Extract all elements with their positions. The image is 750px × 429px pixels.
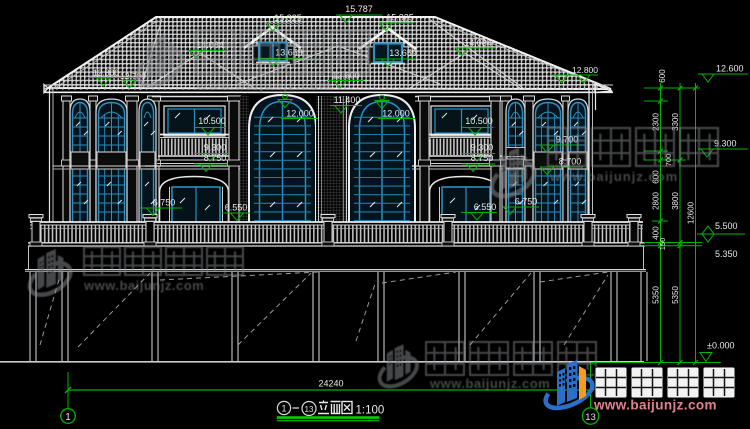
svg-text:5350: 5350 [652, 286, 661, 304]
svg-text:www.baijunjz.com: www.baijunjz.com [429, 376, 550, 391]
svg-text:6.550: 6.550 [474, 202, 497, 212]
svg-text:13.659: 13.659 [389, 48, 417, 58]
svg-text:1: 1 [281, 404, 286, 414]
svg-text:3800: 3800 [671, 192, 680, 210]
svg-text:2800: 2800 [652, 192, 661, 210]
svg-text:10.500: 10.500 [198, 116, 226, 126]
svg-text:400: 400 [652, 226, 661, 240]
svg-text:www.baijunjz.com: www.baijunjz.com [83, 278, 204, 293]
svg-text:9.300: 9.300 [471, 143, 494, 153]
svg-text:±0.000: ±0.000 [707, 341, 734, 351]
svg-text:11.400: 11.400 [334, 95, 361, 105]
svg-text:12.000: 12.000 [286, 109, 314, 119]
svg-text:5.500: 5.500 [715, 221, 738, 231]
svg-text:8.750: 8.750 [204, 153, 227, 163]
svg-text:24240: 24240 [318, 379, 343, 389]
svg-text:www.baijunjz.com: www.baijunjz.com [549, 169, 678, 184]
svg-text:15.787: 15.787 [345, 4, 373, 14]
svg-text:www.baijunjz.com: www.baijunjz.com [195, 77, 333, 93]
svg-text:1:100: 1:100 [356, 405, 385, 417]
svg-text:12.600: 12.600 [332, 71, 360, 81]
svg-text:13: 13 [305, 405, 314, 414]
svg-text:5350: 5350 [671, 286, 680, 304]
svg-text:15.325: 15.325 [386, 13, 414, 23]
svg-text:9.300: 9.300 [204, 143, 227, 153]
svg-text:14.084: 14.084 [464, 38, 492, 48]
svg-text:12.600: 12.600 [716, 64, 744, 74]
svg-text:10.500: 10.500 [465, 116, 493, 126]
svg-text:15.325: 15.325 [274, 13, 302, 23]
svg-text:600: 600 [658, 69, 667, 83]
svg-text:8.750: 8.750 [471, 153, 494, 163]
svg-text:www.baijunjz.com: www.baijunjz.com [593, 398, 717, 413]
svg-text:12.000: 12.000 [382, 109, 410, 119]
svg-text:13: 13 [585, 412, 596, 423]
svg-text:150: 150 [658, 238, 667, 251]
svg-text:12600: 12600 [687, 201, 696, 224]
svg-text:12.800: 12.800 [572, 65, 598, 75]
svg-text:6.750: 6.750 [515, 197, 538, 207]
svg-text:1: 1 [65, 412, 71, 423]
svg-text:12.800: 12.800 [93, 68, 119, 78]
svg-text:6.750: 6.750 [153, 198, 176, 208]
svg-text:5.350: 5.350 [715, 249, 738, 259]
svg-text:6.550: 6.550 [225, 203, 248, 213]
